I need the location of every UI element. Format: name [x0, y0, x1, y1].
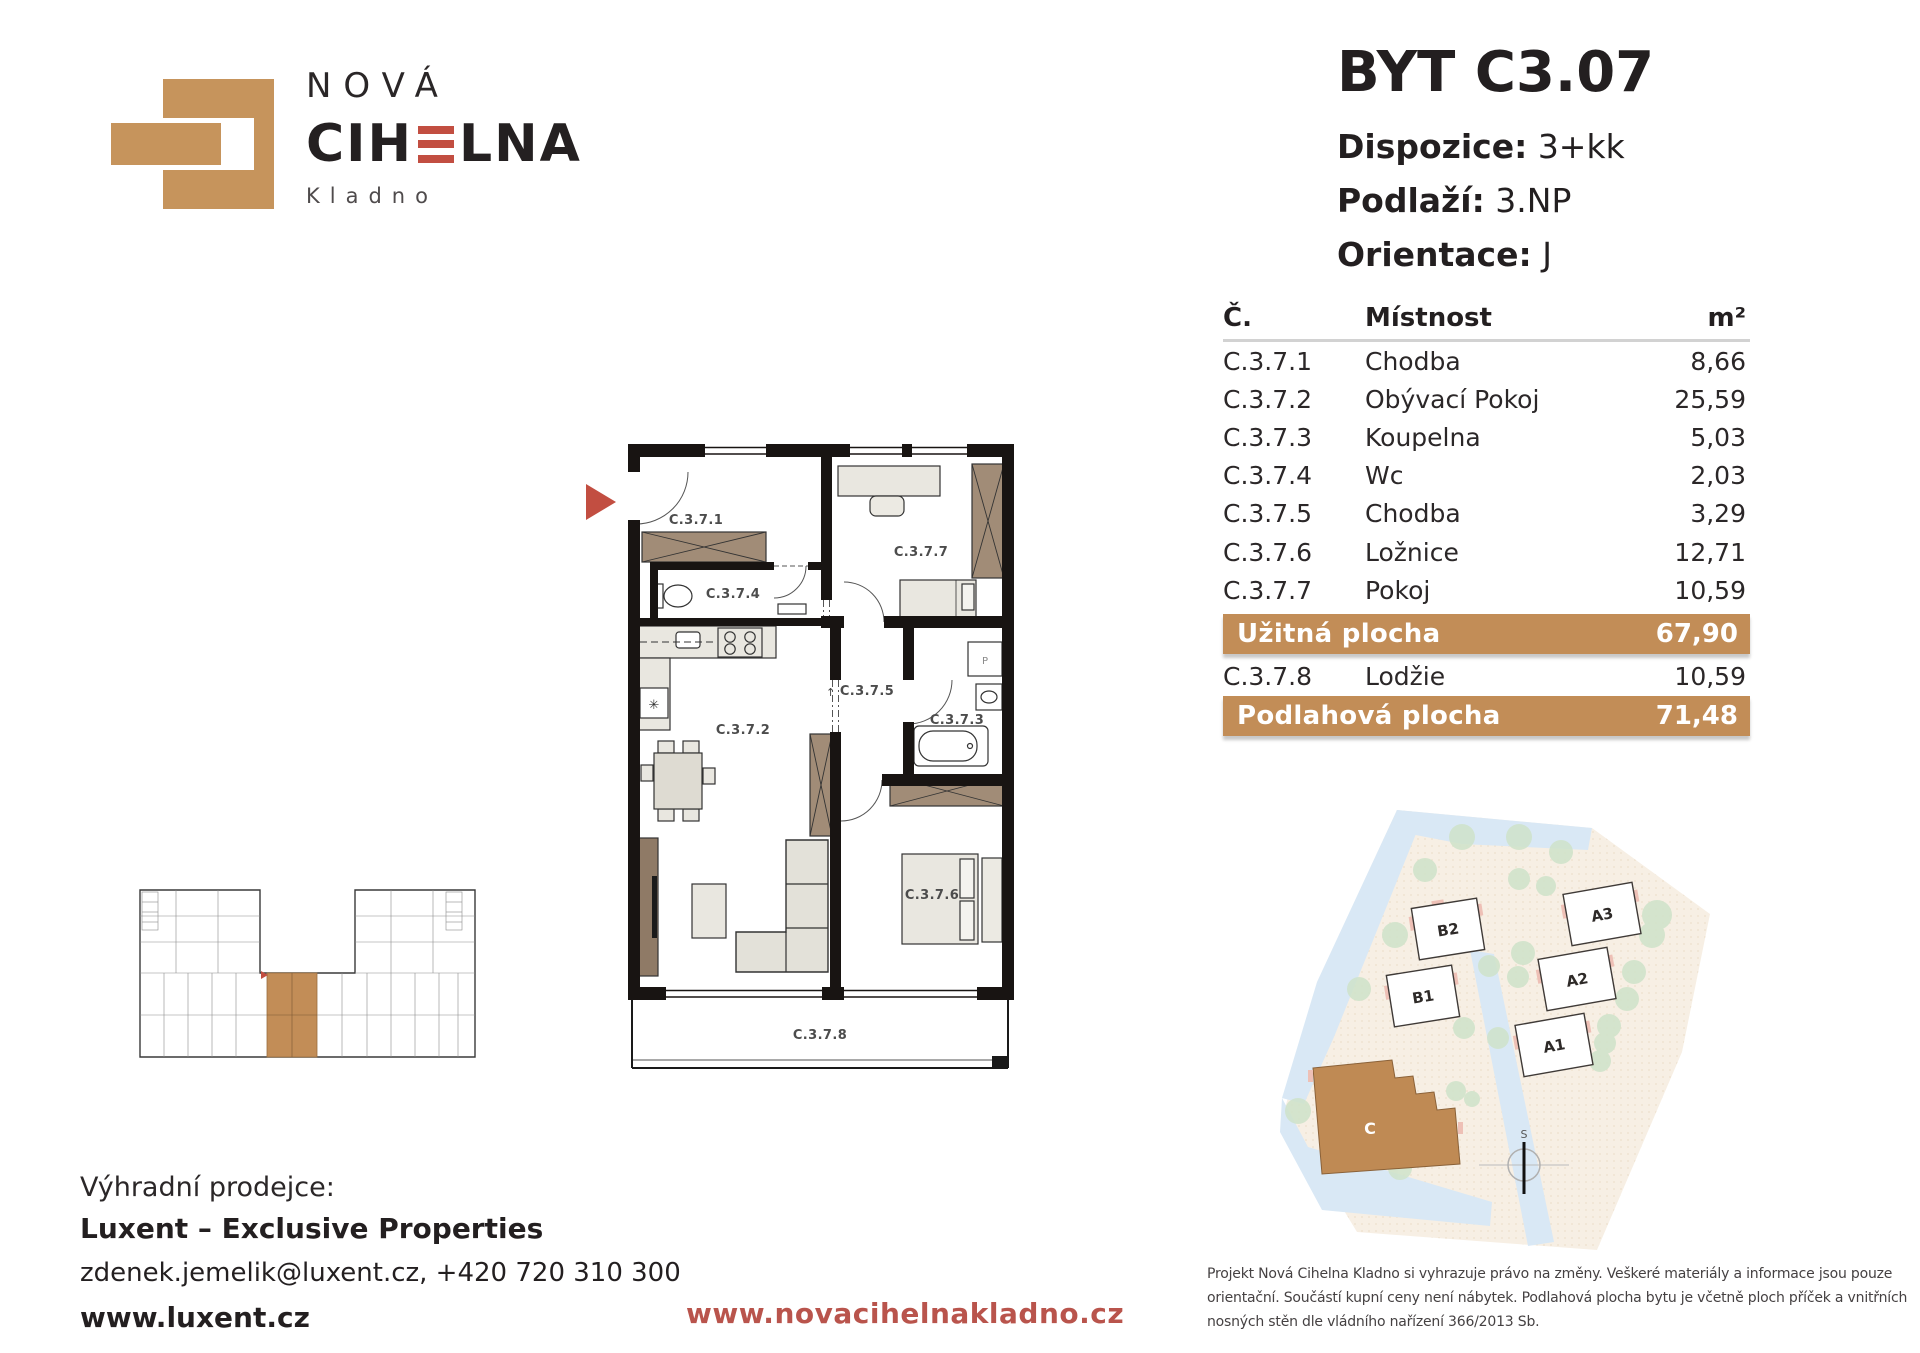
row-num: C.3.7.7 [1223, 576, 1365, 605]
brand-logo: NOVÁ CIH LNA Kladno [306, 66, 582, 208]
entrance-arrow-icon [586, 484, 616, 520]
dining-table [641, 741, 715, 821]
kitchen-counter: ✳ [638, 626, 776, 730]
row-room: Pokoj [1365, 576, 1626, 605]
disclaimer-line: orientační. Součástí kupní ceny není náb… [1207, 1286, 1897, 1310]
unit-info: Dispozice: 3+kk Podlaží: 3.NP Orientace:… [1337, 120, 1625, 282]
row-room: Koupelna [1365, 423, 1626, 452]
disclaimer-text: Projekt Nová Cihelna Kladno si vyhrazuje… [1207, 1262, 1897, 1334]
room-label-4: C.3.7.4 [706, 587, 760, 602]
col-header-room: Místnost [1365, 303, 1626, 333]
wc-door-arc [774, 566, 806, 598]
desk-chair [870, 496, 904, 516]
room-label-3: C.3.7.3 [930, 713, 984, 728]
bedroom-door-arc [841, 780, 882, 821]
sofa [736, 840, 828, 972]
row-area: 10,59 [1626, 662, 1750, 691]
room-label-1: C.3.7.1 [669, 513, 723, 528]
desk [838, 466, 940, 496]
unit-highlight [261, 971, 317, 1057]
row-num: C.3.7.8 [1223, 662, 1365, 691]
room-label-2: C.3.7.2 [716, 723, 770, 738]
row-room: Obývací Pokoj [1365, 385, 1626, 414]
coffee-table [692, 884, 726, 938]
building-label-b2: B2 [1436, 919, 1460, 940]
row-num: C.3.7.5 [1223, 499, 1365, 528]
table-row: C.3.7.5 Chodba 3,29 [1223, 495, 1750, 533]
unit-info-dispozice: Dispozice: 3+kk [1337, 120, 1625, 174]
disclaimer-line: nosných stěn dle vládního nařízení 366/2… [1207, 1310, 1897, 1334]
row-area: 5,03 [1626, 423, 1750, 452]
dispozice-value: 3+kk [1538, 127, 1625, 166]
building-label-b1: B1 [1411, 986, 1435, 1007]
row-area: 25,59 [1626, 385, 1750, 414]
row-room: Lodžie [1365, 662, 1626, 691]
site-plan-drawing: B2 B1 A3 A2 [1262, 802, 1714, 1254]
logo-city: Kladno [306, 184, 582, 208]
unit-title: BYT C3.07 [1337, 40, 1654, 105]
floor-area-value: 71,48 [1656, 701, 1738, 731]
floor-area-label: Podlahová plocha [1237, 701, 1656, 731]
podlazi-label: Podlaží: [1337, 181, 1485, 220]
table-row: C.3.7.4 Wc 2,03 [1223, 457, 1750, 495]
building-B1: B1 [1382, 965, 1463, 1028]
table-row: C.3.7.3 Koupelna 5,03 [1223, 418, 1750, 456]
seller-name: Luxent – Exclusive Properties [80, 1212, 681, 1245]
brand-bricks-icon [111, 79, 276, 209]
table-row: C.3.7.6 Ložnice 12,71 [1223, 533, 1750, 571]
room7-door-arc [844, 582, 884, 622]
compass-north-label: S [1521, 1128, 1528, 1141]
table-row: C.3.7.1 Chodba 8,66 [1223, 342, 1750, 380]
logo-word-pre: CIH [306, 114, 413, 174]
col-header-area: m² [1626, 303, 1750, 333]
washer-label: P [982, 656, 988, 667]
tv-wall [638, 838, 658, 976]
project-website-link[interactable]: www.novacihelnakladno.cz [686, 1297, 1124, 1330]
building-label-a3: A3 [1590, 904, 1615, 926]
room-label-8: C.3.7.8 [793, 1028, 847, 1043]
disclaimer-line: Projekt Nová Cihelna Kladno si vyhrazuje… [1207, 1262, 1897, 1286]
row-num: C.3.7.3 [1223, 423, 1365, 452]
seller-block: Výhradní prodejce: Luxent – Exclusive Pr… [80, 1172, 681, 1334]
row-room: Chodba [1365, 499, 1626, 528]
wardrobe-entry [642, 532, 766, 562]
wardrobe-living [810, 734, 832, 836]
bath-sink [976, 684, 1002, 710]
brick-middle [111, 123, 221, 165]
row-room: Ložnice [1365, 538, 1626, 567]
usable-area-value: 67,90 [1656, 619, 1738, 649]
room-table: Č. Místnost m² C.3.7.1 Chodba 8,66 C.3.7… [1223, 293, 1750, 736]
wardrobe-room7 [972, 464, 1004, 578]
floor-area-bar: Podlahová plocha 71,48 [1223, 696, 1750, 736]
table-row-lodzie: C.3.7.8 Lodžie 10,59 [1223, 656, 1750, 696]
room-label-5: C.3.7.5 [840, 684, 894, 699]
room-label-7: C.3.7.7 [894, 545, 948, 560]
row-room: Wc [1365, 461, 1626, 490]
room-table-header: Č. Místnost m² [1223, 293, 1750, 342]
table-row: C.3.7.7 Pokoj 10,59 [1223, 571, 1750, 609]
col-header-number: Č. [1223, 303, 1365, 333]
seller-website-link[interactable]: www.luxent.cz [80, 1301, 681, 1334]
usable-area-bar: Užitná plocha 67,90 [1223, 614, 1750, 654]
unit-info-orientace: Orientace: J [1337, 228, 1625, 282]
floor-overview-drawing [128, 876, 476, 1064]
room-label-6: C.3.7.6 [905, 888, 959, 903]
row-num: C.3.7.6 [1223, 538, 1365, 567]
row-num: C.3.7.4 [1223, 461, 1365, 490]
row-room: Chodba [1365, 347, 1626, 376]
logo-e-bars-icon [418, 126, 454, 163]
usable-area-label: Užitná plocha [1237, 619, 1656, 649]
building-label-a1: A1 [1542, 1035, 1567, 1057]
building-label-c: C [1364, 1119, 1376, 1138]
row-area: 3,29 [1626, 499, 1750, 528]
logo-line1: NOVÁ [306, 66, 582, 106]
row-num: C.3.7.1 [1223, 347, 1365, 376]
orientace-label: Orientace: [1337, 235, 1532, 274]
seller-label: Výhradní prodejce: [80, 1172, 681, 1203]
table-row: C.3.7.2 Obývací Pokoj 25,59 [1223, 380, 1750, 418]
row-area: 10,59 [1626, 576, 1750, 605]
row-area: 2,03 [1626, 461, 1750, 490]
brick-connector [254, 118, 274, 170]
floorplan-drawing: ✳ [578, 438, 1016, 1080]
podlazi-value: 3.NP [1495, 181, 1571, 220]
row-area: 12,71 [1626, 538, 1750, 567]
unit-info-podlazi: Podlaží: 3.NP [1337, 174, 1625, 228]
row-num: C.3.7.2 [1223, 385, 1365, 414]
brick-bottom [163, 170, 274, 209]
seller-contact-link[interactable]: zdenek.jemelik@luxent.cz, +420 720 310 3… [80, 1258, 681, 1288]
brochure-page: NOVÁ CIH LNA Kladno BYT C3.07 Dispozice:… [0, 0, 1920, 1353]
bathtub [914, 726, 988, 766]
building-label-a2: A2 [1565, 969, 1590, 991]
row-area: 8,66 [1626, 347, 1750, 376]
brick-top [163, 79, 274, 118]
logo-word-post: LNA [459, 114, 582, 174]
arrow-up-glyph: ↑ [826, 686, 835, 699]
orientace-value: J [1542, 235, 1552, 274]
logo-word: CIH LNA [306, 114, 582, 174]
dispozice-label: Dispozice: [1337, 127, 1527, 166]
svg-text:✳: ✳ [649, 698, 660, 713]
